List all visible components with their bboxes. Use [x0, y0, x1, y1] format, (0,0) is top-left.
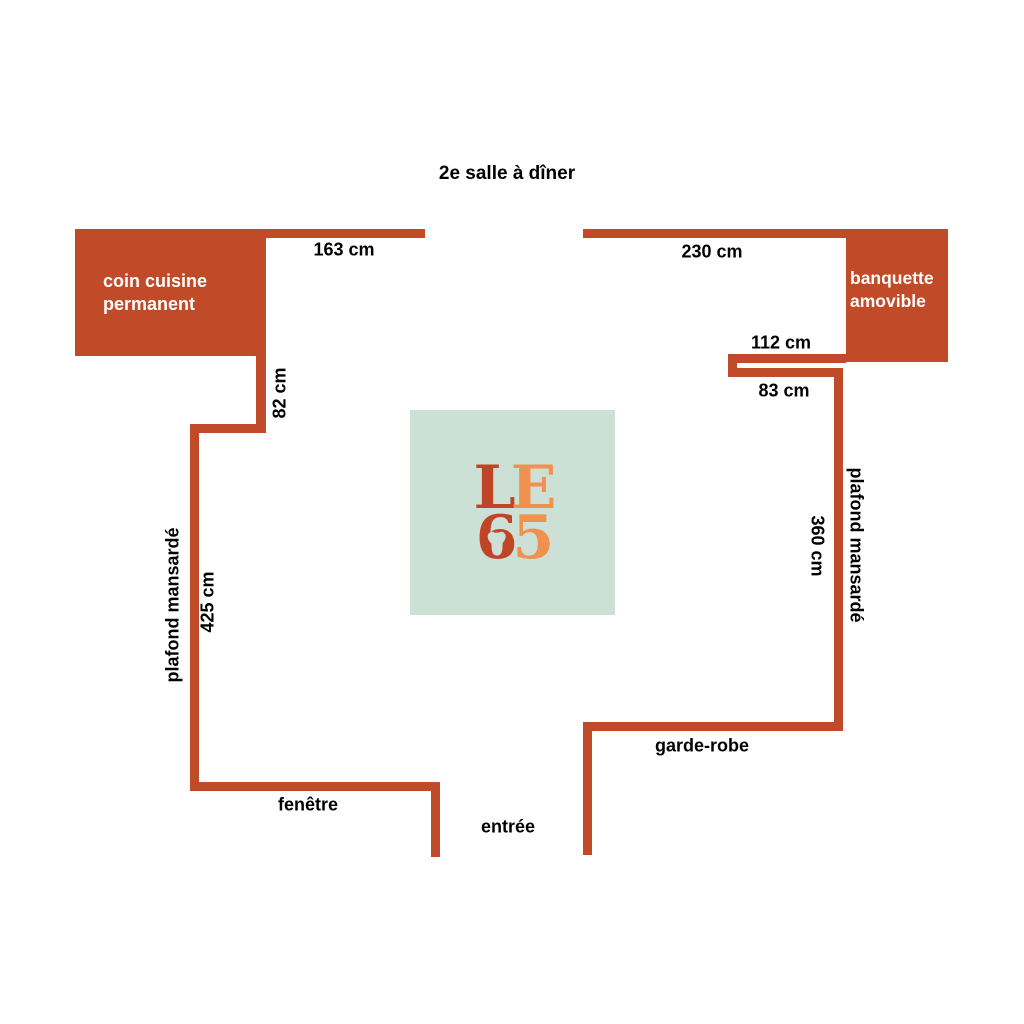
wall-right — [834, 368, 843, 731]
banquette-label-line2: amovible — [850, 290, 934, 313]
wall-window — [190, 782, 440, 791]
kitchen-label: coin cuisine permanent — [103, 270, 207, 316]
wall-entrance-side — [583, 722, 592, 855]
logo-letter-5: 5 — [512, 503, 549, 573]
window-label: fenêtre — [278, 795, 338, 816]
le65-logo: LE 65 ♥ — [474, 463, 552, 563]
dimension-top-right: 230 cm — [681, 242, 742, 263]
wardrobe-label: garde-robe — [655, 736, 749, 757]
dimension-top-left: 163 cm — [313, 240, 374, 261]
dimension-right-wall: 360 cm — [807, 515, 828, 576]
wall-kitchen-return — [256, 355, 266, 433]
wall-step-83 — [728, 368, 843, 377]
floor-plan: 2e salle à dîner coin cuisine permanent … — [0, 0, 1024, 1024]
banquette-label-line1: banquette — [850, 267, 934, 290]
left-ceiling-label: plafond mansardé — [163, 527, 184, 682]
kitchen-label-line2: permanent — [103, 293, 207, 316]
wall-kitchen-step — [190, 424, 266, 433]
right-ceiling-label: plafond mansardé — [846, 467, 867, 622]
page-title: 2e salle à dîner — [439, 163, 575, 185]
wall-banquette-return — [728, 354, 846, 363]
kitchen-area: coin cuisine permanent — [75, 229, 266, 356]
dimension-left-wall: 425 cm — [198, 571, 219, 632]
dimension-kitchen-return: 82 cm — [270, 367, 291, 418]
dimension-banquette-return: 112 cm — [751, 333, 811, 354]
entrance-label: entrée — [481, 817, 535, 838]
heart-icon: ♥ — [486, 529, 508, 554]
dimension-right-step: 83 cm — [758, 381, 809, 402]
banquette-label: banquette amovible — [850, 267, 934, 313]
logo-square: LE 65 ♥ — [410, 410, 615, 615]
banquette-area: banquette amovible — [846, 229, 948, 362]
kitchen-label-line1: coin cuisine — [103, 270, 207, 293]
wall-wardrobe — [583, 722, 843, 731]
wall-window-stub — [431, 782, 440, 857]
